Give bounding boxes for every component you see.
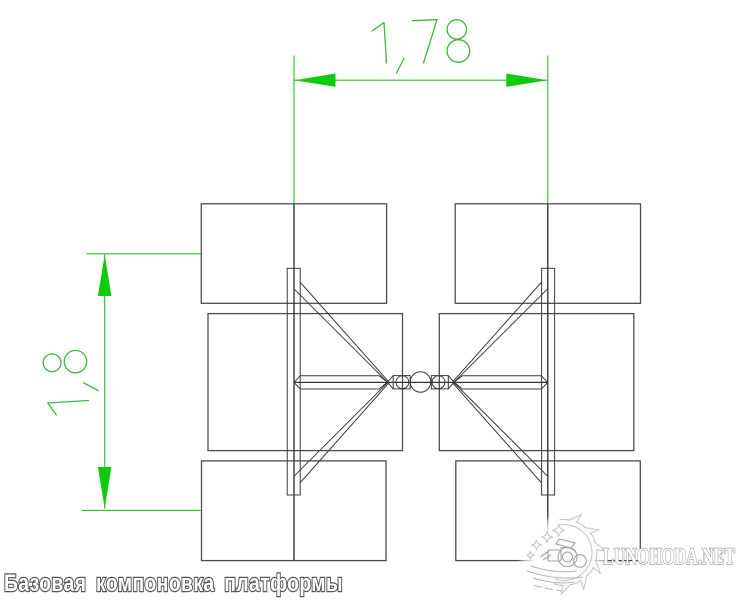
svg-text:Базовая компоновка платформы: Базовая компоновка платформы <box>4 569 343 597</box>
svg-text:LUNOHODA.NET: LUNOHODA.NET <box>603 544 735 569</box>
